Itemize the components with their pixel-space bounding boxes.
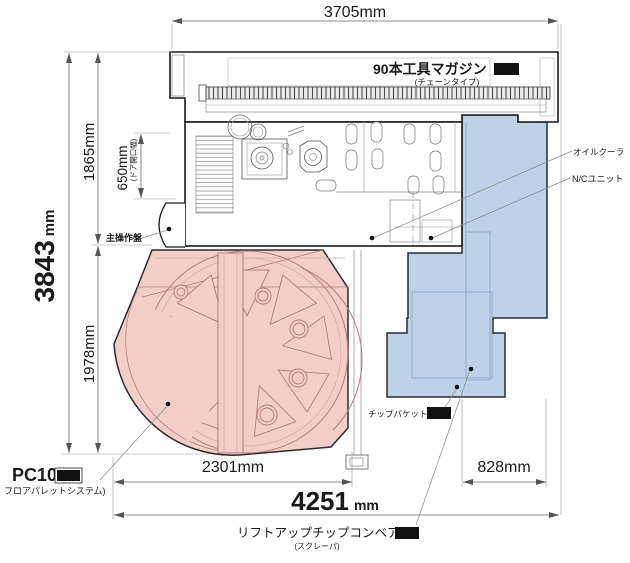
operator-panel-bump xyxy=(159,203,185,247)
main-panel-label: 主操作盤 xyxy=(106,232,143,243)
chip-conveyor-type-label: (スクレーパ) xyxy=(294,542,340,551)
chip-bucket-opt-badge-text: OPT xyxy=(431,409,448,418)
chip-conveyor-opt-badge-text: OPT xyxy=(399,529,416,538)
chip-conveyor-channel xyxy=(346,250,368,469)
dim-total-width-unit: mm xyxy=(354,497,379,513)
machine-layout-diagram: 3705mm 1865mm 1978mm 3843mm 650mm (ドア開口幅… xyxy=(0,0,630,563)
dim-total-width-value: 4251 xyxy=(291,486,349,516)
dim-upper-height: 1865mm xyxy=(81,123,98,181)
pallet-system-label: PC10 xyxy=(12,465,57,485)
pallet-system-std-badge-text: STD xyxy=(61,472,77,481)
chip-bucket-opt-badge: OPT xyxy=(427,407,451,419)
pallet-system-area xyxy=(114,250,362,455)
dim-lower-height: 1978mm xyxy=(81,325,98,383)
dim-right-width: 828mm xyxy=(477,459,530,476)
dim-total-height-value: 3843 xyxy=(29,240,60,302)
tool-magazine-label: 90本工具マガジン xyxy=(373,61,487,77)
pallet-center-column xyxy=(218,253,243,453)
pallet-system-std-badge: STD xyxy=(55,468,82,483)
dim-door-opening-note: (ドア開口幅) xyxy=(128,138,138,181)
dim-total-width: 4251mm xyxy=(291,486,379,516)
tool-magazine-opt-badge: OPT xyxy=(494,63,519,75)
dim-total-height: 3843mm xyxy=(29,210,60,303)
dim-total-height-unit: mm xyxy=(41,210,58,237)
chip-conveyor-label: リフトアップチップコンベア xyxy=(237,526,400,540)
dim-top-width: 3705mm xyxy=(324,4,386,21)
machine-layout-page: 3705mm 1865mm 1978mm 3843mm 650mm (ドア開口幅… xyxy=(0,0,630,563)
nc-unit-label: N/Cユニット xyxy=(572,174,624,184)
dim-door-opening: 650mm xyxy=(115,145,130,190)
pallet-system-note-label: フロアパレットシステム) xyxy=(4,486,106,496)
tool-magazine-opt-badge-text: OPT xyxy=(498,66,515,75)
chip-bucket-label: チップバケット xyxy=(368,409,428,419)
chip-conveyor-opt-badge: OPT xyxy=(395,527,419,539)
tool-magazine-type-label: (チェーンタイプ) xyxy=(415,77,480,87)
dim-pallet-width: 2301mm xyxy=(202,459,264,476)
oil-cooler-label: オイルクーラ xyxy=(573,147,624,157)
